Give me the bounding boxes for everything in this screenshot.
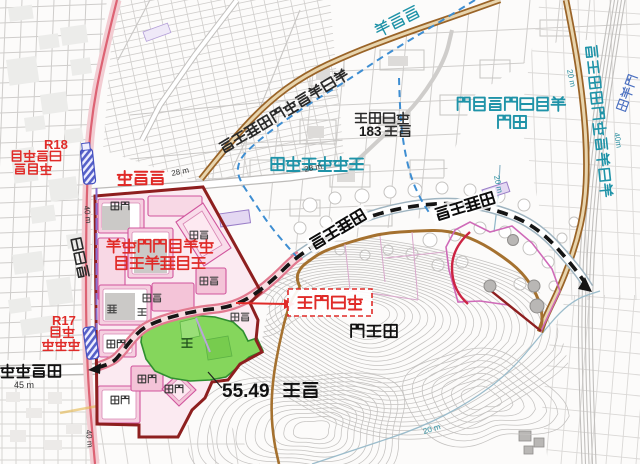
- svg-text:55.49: 55.49: [222, 381, 270, 402]
- svg-text:R18: R18: [44, 137, 68, 152]
- svg-text:40 m: 40 m: [84, 429, 95, 448]
- svg-text:183: 183: [359, 124, 382, 139]
- svg-text:R17: R17: [52, 313, 76, 328]
- svg-text:45 m: 45 m: [14, 380, 34, 390]
